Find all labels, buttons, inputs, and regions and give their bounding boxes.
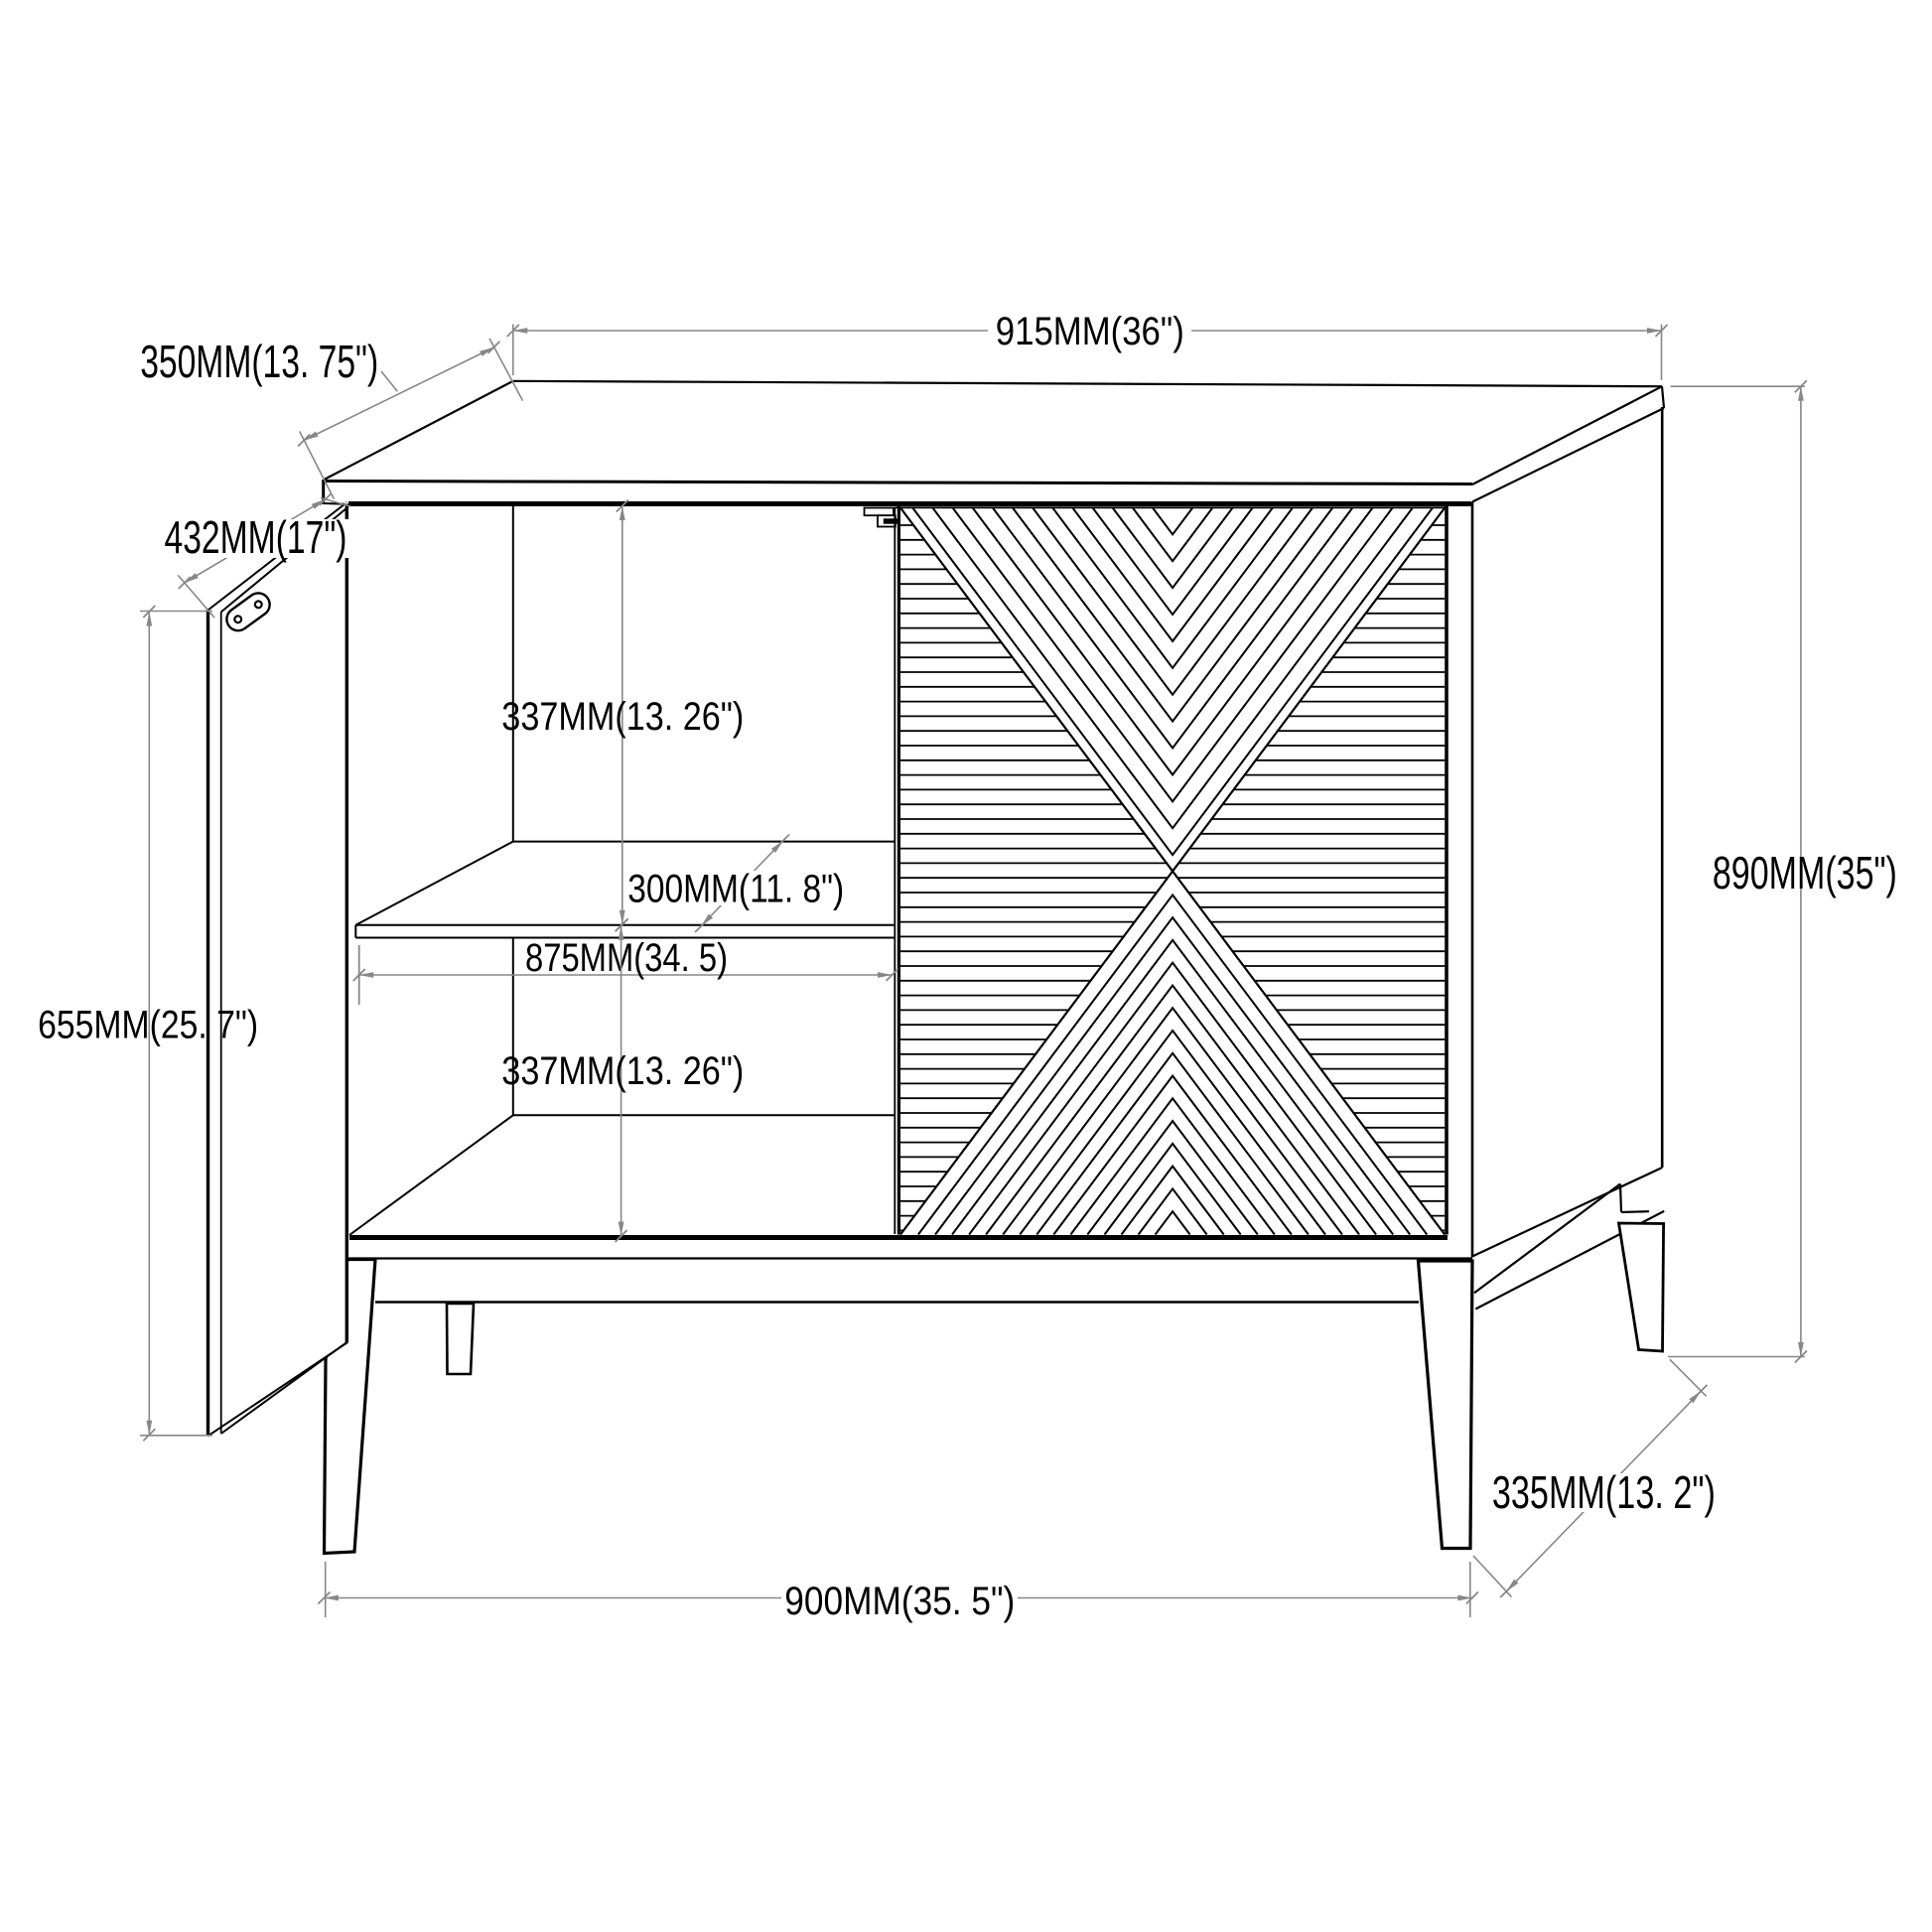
- svg-text:875MM(34. 5): 875MM(34. 5): [525, 936, 728, 980]
- svg-text:337MM(13. 26"): 337MM(13. 26"): [501, 695, 744, 739]
- svg-text:335MM(13. 2"): 335MM(13. 2"): [1492, 1466, 1716, 1518]
- svg-text:655MM(25. 7"): 655MM(25. 7"): [38, 1004, 258, 1047]
- svg-text:350MM(13. 75"): 350MM(13. 75"): [140, 336, 378, 387]
- svg-text:432MM(17"): 432MM(17"): [165, 511, 347, 563]
- svg-text:337MM(13. 26"): 337MM(13. 26"): [501, 1049, 744, 1093]
- svg-text:890MM(35"): 890MM(35"): [1713, 847, 1897, 898]
- svg-text:900MM(35. 5"): 900MM(35. 5"): [784, 1580, 1015, 1623]
- svg-text:300MM(11. 8"): 300MM(11. 8"): [627, 868, 844, 911]
- svg-text:915MM(36"): 915MM(36"): [996, 310, 1184, 353]
